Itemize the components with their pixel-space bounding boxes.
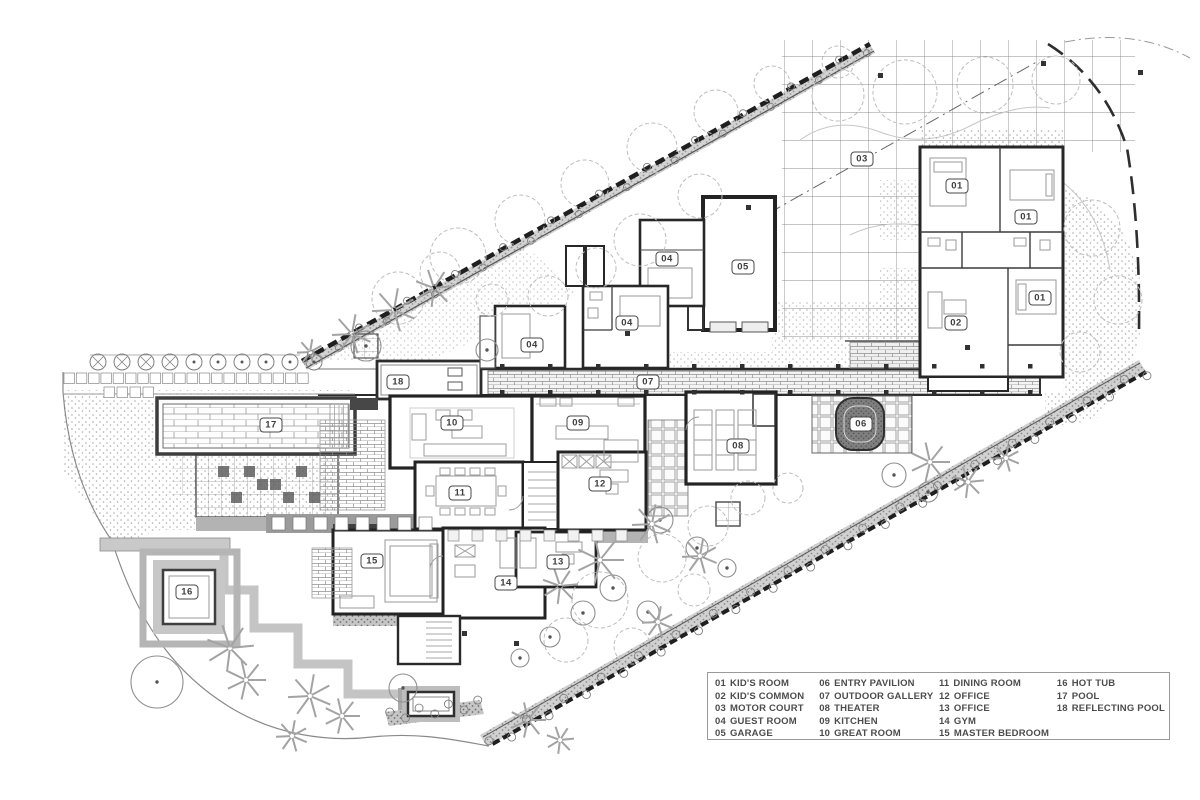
legend-item: 18REFLECTING POOL: [1057, 703, 1165, 716]
legend-item: 06ENTRY PAVILION: [819, 678, 939, 691]
legend-item-label: OUTDOOR GALLERY: [834, 691, 933, 702]
plan-label-13: 13: [547, 555, 570, 570]
legend-item-number: 17: [1057, 691, 1068, 702]
legend-item-label: GARAGE: [730, 728, 773, 739]
legend-item-number: 09: [819, 716, 830, 727]
plan-label-02: 02: [945, 316, 968, 331]
legend-item-label: OFFICE: [954, 691, 990, 702]
legend-item: 07OUTDOOR GALLERY: [819, 691, 939, 704]
legend-item-label: MASTER BEDROOM: [954, 728, 1049, 739]
legend-item-number: 13: [939, 703, 950, 714]
legend-column: 16HOT TUB17POOL18REFLECTING POOL: [1057, 678, 1165, 735]
legend-item-label: OFFICE: [954, 703, 990, 714]
legend-item: 16HOT TUB: [1057, 678, 1165, 691]
buildings: [312, 130, 1063, 664]
legend-item-label: KID'S COMMON: [730, 691, 804, 702]
legend-item-number: 14: [939, 716, 950, 727]
legend-item: 14GYM: [939, 716, 1057, 729]
legend-item-number: 18: [1057, 703, 1068, 714]
plan-label-01: 01: [1029, 291, 1052, 306]
legend-item-number: 10: [819, 728, 830, 739]
plan-label-15: 15: [361, 554, 384, 569]
plan-label-01: 01: [1015, 210, 1038, 225]
legend-item-number: 08: [819, 703, 830, 714]
legend-item-number: 05: [715, 728, 726, 739]
legend-item: 17POOL: [1057, 691, 1165, 704]
legend-item: 15MASTER BEDROOM: [939, 728, 1057, 741]
plan-label-07: 07: [637, 375, 660, 390]
legend-item-number: 16: [1057, 678, 1068, 689]
plan-label-04: 04: [616, 316, 639, 331]
legend-item: 08THEATER: [819, 703, 939, 716]
plan-label-09: 09: [567, 416, 590, 431]
legend-item: 09KITCHEN: [819, 716, 939, 729]
legend-item: 13OFFICE: [939, 703, 1057, 716]
plan-label-08: 08: [727, 439, 750, 454]
legend-item: 10GREAT ROOM: [819, 728, 939, 741]
legend-item-label: DINING ROOM: [953, 678, 1021, 689]
legend-item-label: KID'S ROOM: [730, 678, 789, 689]
legend-item-number: 06: [819, 678, 830, 689]
legend-item: 11DINING ROOM: [939, 678, 1057, 691]
legend-item-label: HOT TUB: [1072, 678, 1116, 689]
legend-item-label: MOTOR COURT: [730, 703, 804, 714]
legend-item-number: 03: [715, 703, 726, 714]
legend-item-number: 07: [819, 691, 830, 702]
legend-item-label: KITCHEN: [834, 716, 878, 727]
plan-label-17: 17: [260, 418, 283, 433]
legend-item: 02KID'S COMMON: [715, 691, 819, 704]
plan-label-04: 04: [521, 338, 544, 353]
plan-label-06: 06: [850, 417, 873, 432]
legend-item-label: REFLECTING POOL: [1072, 703, 1165, 714]
site-plan: 0101010203040404050607080910111213141516…: [0, 0, 1200, 800]
legend-column: 11DINING ROOM12OFFICE13OFFICE14GYM15MAST…: [939, 678, 1057, 735]
plan-label-14: 14: [495, 576, 518, 591]
legend-item-label: POOL: [1072, 691, 1100, 702]
plan-label-03: 03: [851, 152, 874, 167]
legend-item-label: THEATER: [834, 703, 880, 714]
legend-item-number: 11: [939, 678, 949, 689]
legend-item: 01KID'S ROOM: [715, 678, 819, 691]
legend-item-label: GREAT ROOM: [834, 728, 901, 739]
plan-label-01: 01: [946, 179, 969, 194]
plan-label-18: 18: [387, 375, 410, 390]
legend-item-number: 15: [939, 728, 950, 739]
plan-label-12: 12: [589, 477, 612, 492]
legend-item: 05GARAGE: [715, 728, 819, 741]
legend-item-label: GYM: [954, 716, 976, 727]
legend-item: 04GUEST ROOM: [715, 716, 819, 729]
legend-item: 12OFFICE: [939, 691, 1057, 704]
plan-label-05: 05: [732, 260, 755, 275]
legend-item-number: 12: [939, 691, 950, 702]
legend-item-label: GUEST ROOM: [730, 716, 797, 727]
plan-label-16: 16: [176, 585, 199, 600]
legend-box: 01KID'S ROOM02KID'S COMMON03MOTOR COURT0…: [707, 672, 1170, 740]
legend-column: 06ENTRY PAVILION07OUTDOOR GALLERY08THEAT…: [819, 678, 939, 735]
legend-item: 03MOTOR COURT: [715, 703, 819, 716]
plan-label-11: 11: [449, 486, 472, 501]
legend-item-number: 01: [715, 678, 726, 689]
plan-label-10: 10: [441, 416, 464, 431]
legend-item-label: ENTRY PAVILION: [834, 678, 915, 689]
legend-column: 01KID'S ROOM02KID'S COMMON03MOTOR COURT0…: [715, 678, 819, 735]
legend-item-number: 04: [715, 716, 726, 727]
legend-item-number: 02: [715, 691, 726, 702]
plan-label-04: 04: [656, 252, 679, 267]
